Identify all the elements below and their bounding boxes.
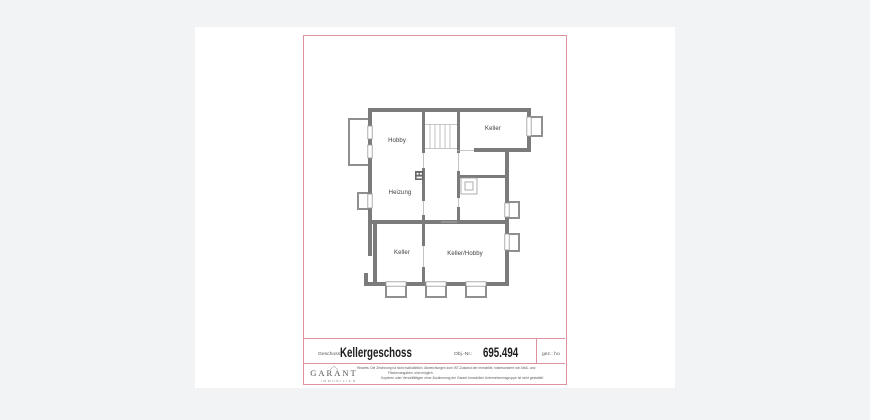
screenshot-canvas: Hobby Keller Heizung Keller Keller/Hobby…	[0, 0, 870, 420]
geschoss-label: Geschoss:	[318, 351, 342, 356]
shaft-icon	[461, 178, 477, 194]
document-page: Hobby Keller Heizung Keller Keller/Hobby…	[195, 27, 675, 388]
footer-divider-line	[536, 339, 537, 364]
walls	[364, 108, 531, 286]
legal-block: GARANT IMMOBILIEN Hinweis: Die Zeichnung…	[304, 363, 565, 384]
plan-frame: Hobby Keller Heizung Keller Keller/Hobby…	[303, 35, 567, 385]
floor-plan-drawing	[304, 36, 565, 383]
title-block: Geschoss: Kellergeschoss Obj.-Nr.: 695.4…	[304, 338, 565, 364]
room-label-keller-hobby: Keller/Hobby	[447, 251, 483, 257]
logo-sub-text: IMMOBILIEN	[321, 380, 347, 383]
object-number-label: Obj.-Nr.:	[454, 351, 473, 356]
geschoss-value: Kellergeschoss	[340, 346, 412, 360]
disclaimer-text: Hinweis: Die Zeichnung ist nicht maßstäb…	[357, 366, 567, 381]
drawn-by-label: gez.: ho	[542, 351, 560, 356]
object-number-value: 695.494	[483, 346, 518, 360]
logo-roof-icon	[330, 366, 338, 370]
room-label-keller-top: Keller	[485, 126, 501, 132]
chimney-icon	[415, 171, 424, 180]
room-label-keller-bottom: Keller	[394, 250, 410, 256]
room-label-hobby: Hobby	[388, 138, 406, 144]
garant-logo: GARANT IMMOBILIEN	[310, 369, 358, 386]
light-wells	[349, 117, 542, 297]
logo-name-text: GARANT	[310, 369, 358, 378]
staircase	[425, 125, 457, 149]
disclaimer-line-3: Kopieren oder Vervielfältigen ohne Zusti…	[381, 376, 567, 381]
door-openings	[424, 151, 475, 268]
room-label-heizung: Heizung	[389, 190, 412, 196]
